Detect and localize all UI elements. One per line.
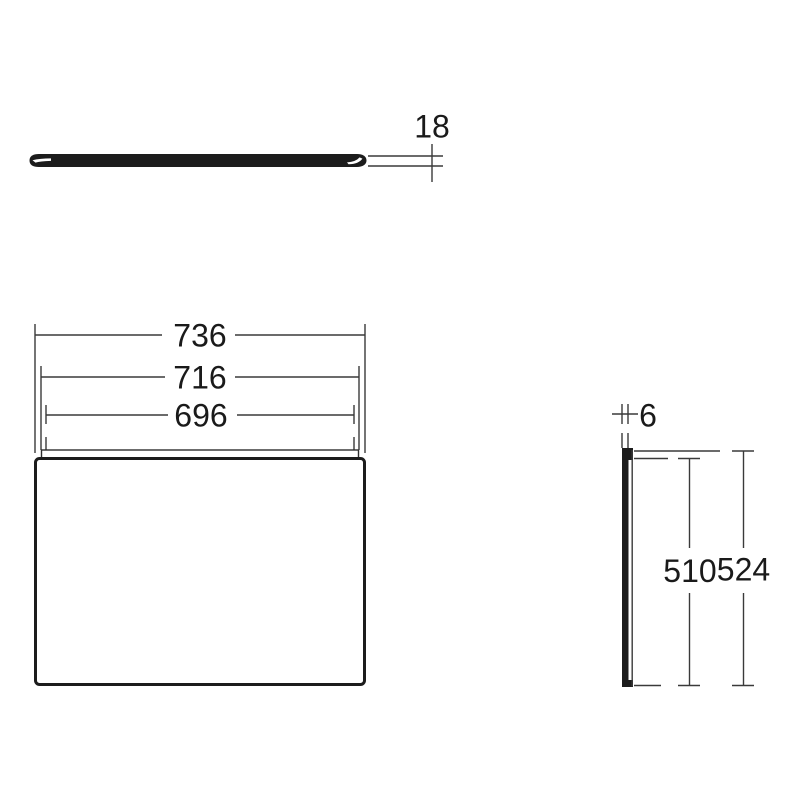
technical-drawing-canvas: 18 736 716 696: [0, 0, 800, 800]
panel-side-bar-top-cap: [622, 448, 633, 460]
dim-label-6: 6: [639, 398, 657, 434]
panel-side-bar: [622, 448, 629, 687]
dimension-18: 18: [368, 109, 450, 183]
front-view: 736 716 696: [35, 318, 365, 685]
dim-label-736: 736: [173, 318, 226, 354]
dim-label-524: 524: [717, 552, 770, 588]
top-edge-view: 18: [30, 109, 450, 183]
dimension-510: 510: [663, 459, 716, 686]
dimension-696: 696: [46, 398, 354, 451]
panel-edge-profile: [30, 154, 367, 167]
panel-top-strip: [42, 450, 359, 458]
panel-side-bar-bottom-cap: [622, 680, 633, 687]
dim-label-716: 716: [173, 360, 226, 396]
side-view: 6 510 524: [612, 398, 770, 688]
panel-side-profile: [622, 448, 633, 687]
dim-label-18: 18: [414, 109, 450, 145]
panel-front-face: [36, 459, 365, 685]
dimension-6: 6: [612, 398, 657, 449]
dim-label-510: 510: [663, 553, 716, 589]
dim-label-696: 696: [174, 398, 227, 434]
technical-drawing-page: 18 736 716 696: [0, 0, 800, 800]
dimension-524: 524: [717, 451, 770, 686]
